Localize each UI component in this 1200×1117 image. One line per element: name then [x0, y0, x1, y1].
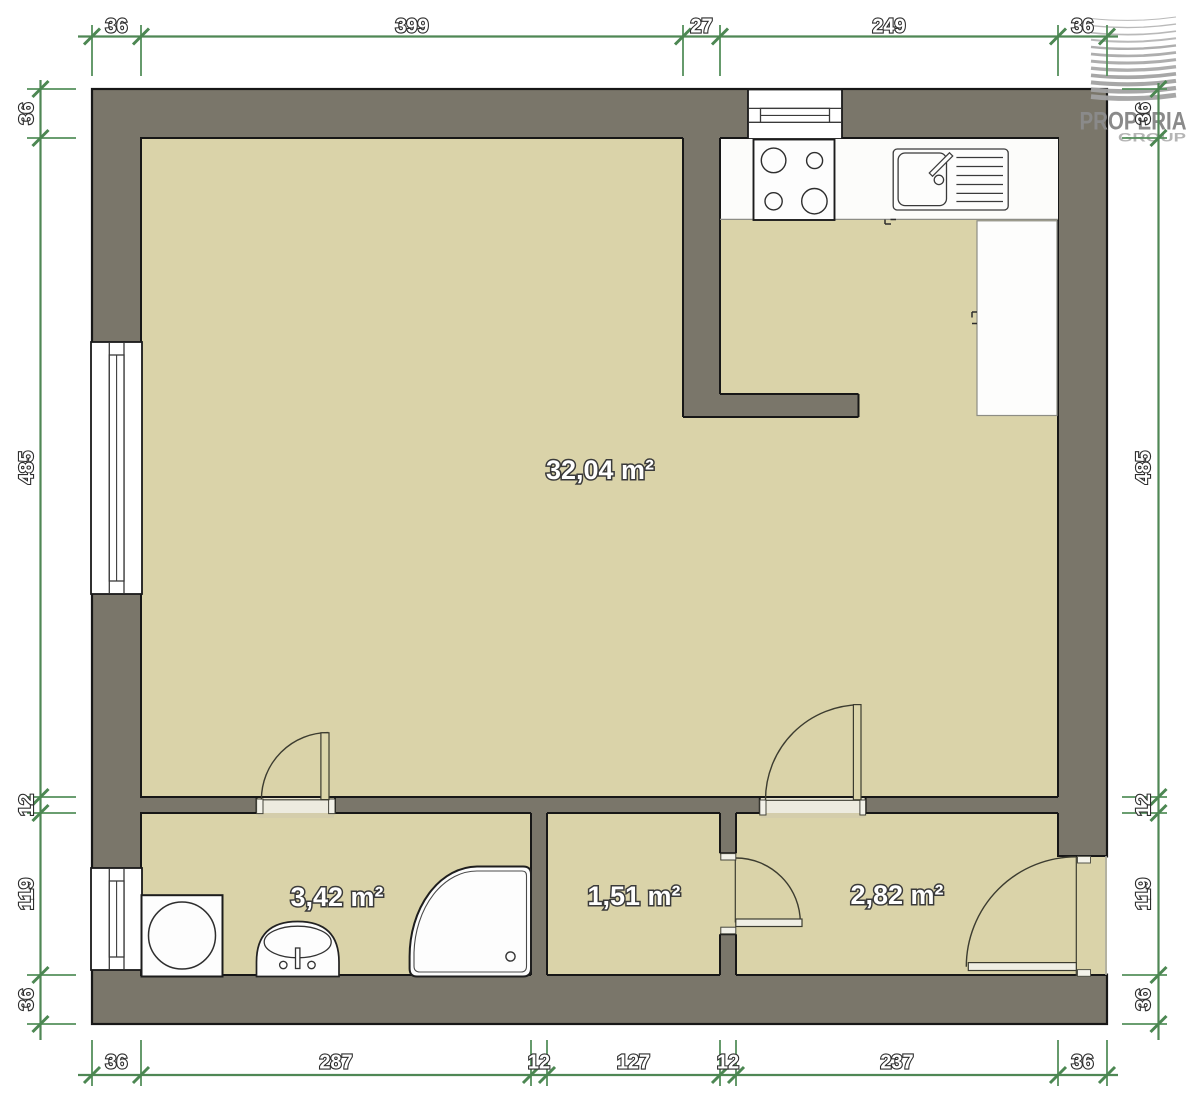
svg-text:3,42 m²: 3,42 m²	[290, 882, 383, 912]
svg-text:399: 399	[395, 16, 428, 38]
svg-text:119: 119	[1133, 878, 1155, 910]
svg-text:287: 287	[319, 1052, 352, 1074]
svg-text:12: 12	[1133, 794, 1155, 816]
svg-text:12: 12	[16, 794, 38, 816]
svg-text:36: 36	[1133, 102, 1155, 124]
svg-text:36: 36	[105, 16, 127, 38]
svg-text:12: 12	[717, 1052, 739, 1074]
svg-text:119: 119	[16, 878, 38, 910]
svg-text:36: 36	[1071, 16, 1093, 38]
svg-text:36: 36	[16, 988, 38, 1010]
svg-text:36: 36	[1133, 988, 1155, 1010]
svg-text:127: 127	[617, 1052, 650, 1074]
svg-text:12: 12	[528, 1052, 550, 1074]
svg-text:36: 36	[105, 1052, 127, 1074]
svg-text:27: 27	[690, 16, 712, 38]
svg-text:36: 36	[16, 102, 38, 124]
svg-text:2,82 m²: 2,82 m²	[850, 880, 943, 910]
svg-text:249: 249	[872, 16, 905, 38]
svg-text:485: 485	[1133, 451, 1155, 484]
svg-text:32,04 m²: 32,04 m²	[546, 455, 654, 485]
svg-text:1,51 m²: 1,51 m²	[587, 881, 680, 911]
svg-text:237: 237	[880, 1052, 913, 1074]
svg-text:36: 36	[1071, 1052, 1093, 1074]
svg-text:485: 485	[16, 451, 38, 484]
